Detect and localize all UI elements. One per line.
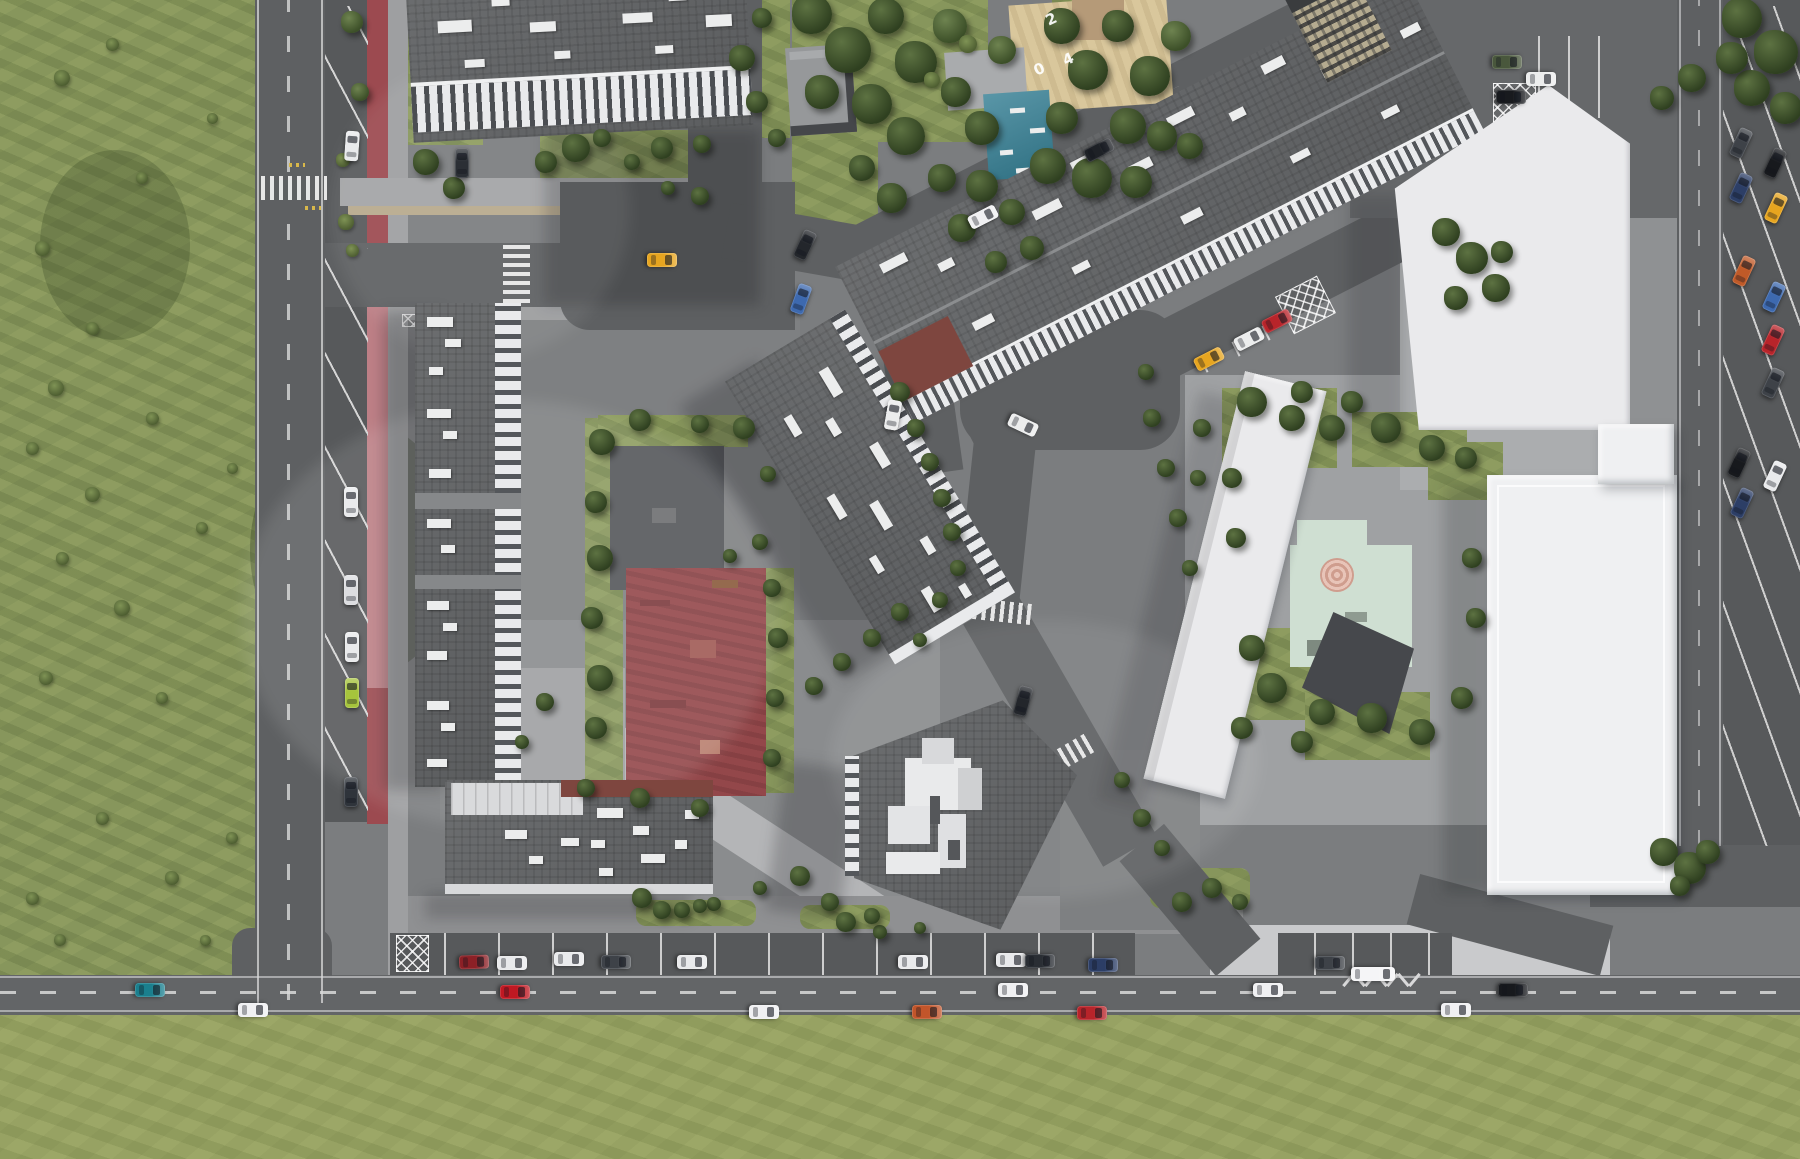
car-rear-window [1265,319,1274,330]
car-rear-window [1764,343,1775,352]
tree [1120,166,1152,198]
car [1526,72,1556,86]
car-windshield [619,957,626,967]
roof-vent [561,838,579,846]
car-windshield [1514,92,1521,102]
tree [1670,876,1690,896]
road-east-dash [1698,0,1700,846]
car-windshield [1043,956,1050,966]
car-rear-window [347,653,357,658]
car-rear-window [605,957,610,967]
white-building-corner [1598,424,1674,484]
car-rear-window [1733,506,1744,515]
car-rear-window [1730,466,1741,475]
roof-vent [491,0,509,6]
bush [106,38,119,51]
car-windshield [1738,177,1750,188]
bush [959,35,977,53]
tree [1491,241,1513,263]
bush [114,600,130,616]
tree [1482,274,1510,302]
car-windshield [1271,985,1278,995]
road-edge-line [257,0,259,1003]
tree [1722,0,1762,38]
tree [691,187,709,205]
pool-bench [1010,107,1025,113]
car-windshield [1099,141,1110,153]
tree [1114,772,1130,788]
tree [535,151,557,173]
tree [941,77,971,107]
tree [852,84,892,124]
car-rear-window [1002,985,1007,995]
car [135,983,165,997]
tree [632,888,652,908]
tree [1130,56,1170,96]
bush [196,522,208,534]
car-windshield [889,404,900,413]
roof-vent [441,723,455,731]
car-rear-window [651,255,656,265]
tree [988,36,1016,64]
bush [156,692,168,704]
tree [1147,121,1177,151]
car [455,148,469,178]
car-windshield [153,985,160,995]
car [459,954,489,969]
tree [1161,21,1191,51]
car-windshield [347,683,357,690]
car-windshield [347,136,357,144]
yellow-tactile-dots [305,206,321,210]
roof-terrace-steps [888,806,930,844]
tree [1072,158,1112,198]
car-windshield [983,208,994,220]
tree [913,633,927,647]
car-windshield [665,255,672,265]
crosswalk-west-road [261,176,327,200]
yellow-tactile-dots [289,163,305,167]
car-windshield [572,954,579,964]
facade-trim [445,884,713,894]
car [912,1005,942,1019]
tree [763,579,781,597]
roof-vent [427,519,451,528]
car-rear-window [902,957,907,967]
tree [746,91,768,113]
tree [341,11,363,33]
car [677,955,707,969]
apartment-building-northwest [403,0,754,143]
road-east-edge [1719,0,1721,846]
car-rear-window [793,303,804,311]
tree [593,129,611,147]
roof-vent [655,45,673,54]
tree [587,665,613,691]
car-rear-window [886,420,897,427]
car-windshield [1019,690,1030,699]
car-rear-window [1530,74,1535,84]
tree [752,534,768,550]
tree [760,466,776,482]
car-windshield [1383,969,1390,979]
roof-vent [427,759,447,767]
tree [581,607,603,629]
bush [96,812,109,825]
bush [39,671,53,685]
roof-vent [445,339,461,347]
facade-stripes [845,756,859,876]
car-windshield [1771,286,1783,297]
tree [1232,894,1248,910]
roof-vent [427,651,447,660]
car-windshield [1770,329,1782,340]
tree [1291,381,1313,403]
tree [536,693,554,711]
car-windshield [930,1007,937,1017]
junction-flare-west [232,928,332,978]
car-rear-window [1000,955,1005,965]
tree [1696,840,1720,864]
tree [805,75,839,109]
connector [415,493,521,509]
parapet-ring [1497,485,1665,883]
car-rear-window [1015,706,1026,713]
car-windshield [1773,197,1785,208]
car-windshield [695,957,702,967]
bush [26,442,39,455]
roof-vent [633,826,649,835]
tree [1357,703,1387,733]
bush [146,412,159,425]
bush [136,172,148,184]
car-rear-window [1087,148,1096,159]
roof-vent [441,545,455,553]
tree [768,129,786,147]
car-rear-window [457,169,467,174]
car [1025,954,1055,968]
car [996,953,1026,967]
roof-vent [675,840,687,849]
car-rear-window [971,215,980,226]
tree [585,491,607,513]
bush [54,934,66,946]
car-rear-window [1257,985,1262,995]
tree [752,8,772,28]
car-windshield [797,288,809,298]
tree [1456,242,1488,274]
tree [753,881,767,895]
main-road-edge [0,976,1800,978]
car-rear-window [504,987,509,997]
car-windshield [1544,74,1551,84]
car-windshield [1459,1005,1466,1015]
tree [413,149,439,175]
tree [1734,70,1770,106]
tree [1157,459,1175,477]
roof-vent [429,367,443,375]
roof-vent [529,856,543,864]
main-road-edge [0,1010,1800,1012]
apartment-building-southwest [445,780,713,894]
roof-vent [429,469,451,478]
tree [585,717,607,739]
car-rear-window [1197,357,1206,368]
car-windshield [1106,960,1113,970]
bush [35,241,50,256]
car-rear-window [1011,416,1020,427]
tree [1319,415,1345,441]
tree [693,899,707,913]
car-rear-window [558,954,563,964]
roof-terrace-steps [958,768,982,810]
apartment-building-west [415,303,521,787]
tree [932,592,948,608]
grass-field-south [0,1012,1800,1159]
tree [985,251,1007,273]
tree [651,137,673,159]
tree [1466,608,1486,628]
car-rear-window [916,1007,921,1017]
tree [1020,236,1044,260]
tree [1202,878,1222,898]
car-windshield [1770,372,1782,383]
tree [763,749,781,767]
parking-lines-east [1723,6,1800,846]
car-windshield [1095,1008,1102,1018]
car-rear-window [1496,57,1501,67]
tree [1237,387,1267,417]
bush [338,214,354,230]
roof-slot [948,840,960,860]
tree [674,902,690,918]
roof-vent [622,12,652,24]
car [344,487,358,517]
tree [1030,148,1066,184]
tree [624,154,640,170]
bush [165,871,179,885]
car-windshield [346,580,356,587]
car-rear-window [1092,960,1097,970]
tree [630,788,650,808]
tree [863,629,881,647]
tree [1231,717,1253,739]
tree [661,181,675,195]
car [601,955,631,969]
roof-vent [597,808,623,818]
tree [907,419,925,437]
car [1492,55,1522,69]
car-rear-window [242,1005,247,1015]
tree [833,653,851,671]
car [1496,90,1526,104]
car-windshield [1249,330,1260,342]
tree [1154,840,1170,856]
tree [1462,548,1482,568]
tree [589,429,615,455]
tree [999,199,1025,225]
car-windshield [1024,422,1035,434]
tree [1444,286,1468,310]
car-windshield [346,782,356,789]
tree [1455,447,1477,469]
road-east [1677,0,1723,848]
aerial-site-render: 240 [0,0,1800,1159]
mint-playground [1297,520,1367,560]
car [238,1003,268,1017]
tree [653,901,671,919]
center-dash-west-road [287,0,290,172]
car-rear-window [1355,969,1360,979]
pool-bench [1030,127,1045,133]
car-rear-window [753,1007,758,1017]
roof-vent [599,868,613,876]
tree [693,135,711,153]
car-rear-window [346,596,356,601]
tree [1291,731,1313,753]
tree [587,545,613,571]
roof-vent [437,20,472,34]
tree [733,417,755,439]
car-windshield [256,1005,263,1015]
roof-terrace-steps [922,738,954,764]
car [344,777,358,807]
tree [943,523,961,541]
tree [928,164,956,192]
car-rear-window [1764,386,1775,395]
car-rear-window [1735,274,1746,283]
tree [707,897,721,911]
car [1498,983,1528,997]
tree [691,415,709,433]
roof-terrace-steps [886,852,940,874]
car [898,955,928,969]
tree [729,45,755,71]
tree [1678,64,1706,92]
car [998,983,1028,997]
tree [691,799,709,817]
car [1088,958,1118,972]
car-rear-window [1319,958,1324,968]
car-rear-window [1500,92,1505,102]
car [647,253,677,267]
tree [877,183,907,213]
roof-vent [554,50,570,59]
tree [849,155,875,181]
tree [1279,405,1305,431]
tree [351,83,369,101]
car-windshield [1516,985,1523,995]
facade-windows [495,303,521,787]
tree [1341,391,1363,413]
car-windshield [916,957,923,967]
bush [200,935,211,946]
bush [86,322,99,335]
car-windshield [1772,465,1784,476]
car-windshield [1772,152,1784,163]
car-rear-window [347,699,357,704]
car-rear-window [1766,479,1777,488]
tree [1172,892,1192,912]
tree [825,27,871,73]
tree [950,560,966,576]
tree [914,922,926,934]
car-rear-window [681,957,686,967]
car-windshield [1738,132,1750,143]
bush [207,113,218,124]
tree [1138,364,1154,380]
tree [629,409,651,431]
roof-vent [465,59,485,68]
tree [921,453,939,471]
bush [54,70,70,86]
car-rear-window [1081,1008,1086,1018]
car-rear-window [1767,211,1778,220]
tree [1143,409,1161,427]
tree [1432,218,1460,246]
tree [966,170,998,202]
roof-vent [427,409,451,418]
road-main [0,975,1800,1015]
car-rear-window [139,985,144,995]
hatch-box-main [396,935,429,972]
car [1077,1006,1107,1020]
tree [1110,108,1146,144]
tree [1409,719,1435,745]
bush [227,463,238,474]
tree [723,549,737,563]
car-windshield [346,492,356,499]
car-rear-window [346,508,356,513]
tree [1222,468,1242,488]
car-windshield [1277,312,1288,324]
roof-slot [930,796,940,824]
roof-vent [591,840,605,848]
roof-vent [530,21,556,32]
tree [1133,809,1151,827]
road-east-edge [1679,0,1681,846]
tree [1177,133,1203,159]
tree [891,603,909,621]
tree [1371,413,1401,443]
roof-vent [443,431,457,439]
car-rear-window [501,958,506,968]
tree [1770,92,1800,124]
tree [562,134,590,162]
spiral-mound [1320,558,1354,592]
bush [924,72,940,88]
tree [766,689,784,707]
car-rear-window [1732,146,1743,155]
tree [1257,673,1287,703]
car-rear-window [1445,1005,1450,1015]
bush [85,487,100,502]
tree [836,912,856,932]
tree [1193,419,1211,437]
connector [415,575,521,589]
car-windshield [1209,350,1220,362]
grass-field-west [0,0,256,980]
car-windshield [1014,955,1021,965]
tree [965,111,999,145]
main-road-center-dash [0,991,1800,994]
tree [1419,435,1445,461]
car-rear-window [1732,191,1743,200]
tree [887,117,925,155]
car [1315,956,1345,970]
tree [1182,560,1198,576]
car-windshield [802,234,814,245]
